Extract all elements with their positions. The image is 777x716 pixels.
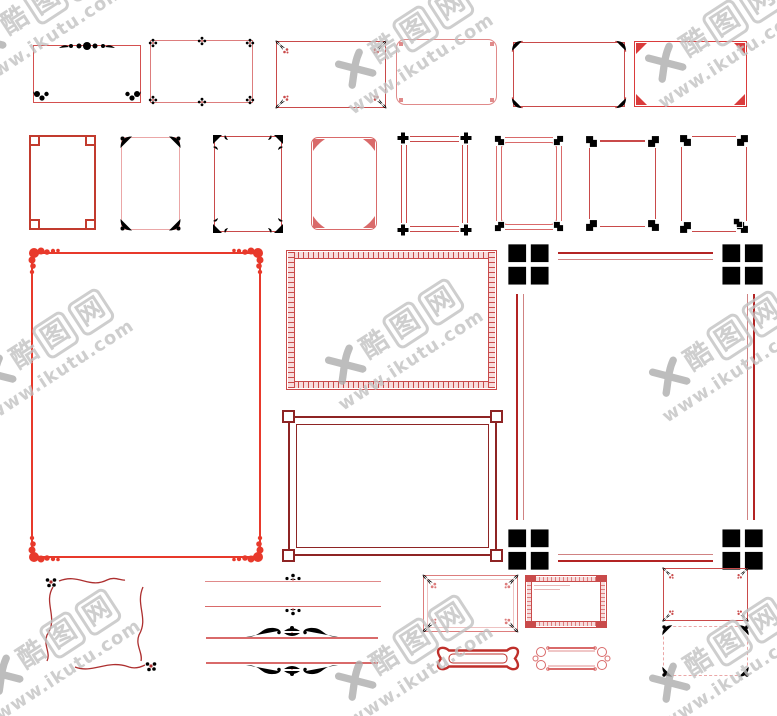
floral-spray-icon xyxy=(274,39,290,55)
lace-corner-icon xyxy=(119,135,134,150)
square-knot-icon xyxy=(585,135,598,148)
meander-band xyxy=(488,252,495,388)
square-knot-icon xyxy=(553,221,564,232)
frame-pink-dashed-small xyxy=(663,626,748,676)
frame-triangle-corner-rect xyxy=(634,41,747,107)
bottom-bar xyxy=(600,226,645,228)
floret-icon xyxy=(245,38,255,48)
frame-inset-bar-portrait xyxy=(589,137,656,230)
corner-square-icon xyxy=(490,42,494,46)
clipart-sheet: 酷 图 网 www.ikutu.com 酷 图 网 www.ikutu.com … xyxy=(0,0,777,716)
knot-square-icon xyxy=(29,219,40,230)
watermark-char: 网 xyxy=(425,0,477,32)
knot-square-icon xyxy=(282,549,295,562)
floral-spray-icon xyxy=(661,609,675,623)
divider-crown xyxy=(205,571,381,587)
top-bar xyxy=(600,140,645,142)
watermark-char: 图 xyxy=(20,0,72,27)
curl-corner-icon xyxy=(511,40,523,52)
floral-spray-icon xyxy=(736,566,750,580)
divider-swirl-up xyxy=(206,624,378,642)
watermark-char: 网 xyxy=(55,0,107,4)
square-knot-icon xyxy=(679,221,692,234)
floral-spray-icon xyxy=(736,609,750,623)
inner-border xyxy=(523,259,748,555)
angular-corner-icon xyxy=(212,134,228,150)
frame-fan-corner-portrait xyxy=(311,137,377,230)
knot-square-icon xyxy=(490,549,503,562)
frame-greek-key-border xyxy=(286,250,497,390)
cross-knot-icon xyxy=(396,223,410,237)
floral-spray-icon xyxy=(503,617,520,634)
divider-swirl-down xyxy=(206,656,378,676)
frame-curl-corner-rect xyxy=(513,42,625,107)
fan-corner-icon xyxy=(313,216,325,228)
knot-square-icon xyxy=(29,135,40,146)
meander-band xyxy=(288,252,295,388)
lace-corner-icon xyxy=(167,217,182,232)
frame-rounded-square-dots xyxy=(396,39,497,105)
curly-banner-icon xyxy=(428,643,528,674)
placeholder-line xyxy=(534,585,570,586)
floret-icon xyxy=(197,36,207,46)
cloud-corner-icon xyxy=(227,534,265,564)
cross-knot-icon xyxy=(396,131,410,145)
floret-icon xyxy=(148,95,158,105)
frame-ornate-corner-small xyxy=(663,568,748,621)
inner-border xyxy=(427,579,514,628)
scroll-band-icon xyxy=(57,41,117,51)
frame-floret-rect xyxy=(150,40,253,103)
square-knot-icon xyxy=(733,218,743,228)
triangle-corner-icon xyxy=(734,94,745,105)
frame-lace-portrait xyxy=(121,137,180,230)
scroll-banner-icon xyxy=(530,640,613,677)
pattern-band xyxy=(527,621,605,626)
floret-icon xyxy=(197,97,207,107)
cross-knot-icon xyxy=(459,223,473,237)
placeholder-line xyxy=(534,589,560,590)
floral-spray-icon xyxy=(503,573,520,590)
floral-spray-icon xyxy=(421,617,438,634)
ikutu-x-icon xyxy=(0,651,25,698)
pattern-band xyxy=(600,577,605,626)
knot-square-icon xyxy=(490,410,503,423)
ikutu-x-icon xyxy=(0,17,8,64)
frame-floral-corner-rect xyxy=(276,41,386,108)
fan-corner-icon xyxy=(363,139,375,151)
floral-spray-icon xyxy=(421,573,438,590)
lace-corner-icon xyxy=(119,217,134,232)
pattern-band xyxy=(527,577,605,582)
corner-square-icon xyxy=(490,98,494,102)
floral-spray-icon xyxy=(372,94,388,110)
floral-spray-icon xyxy=(661,566,675,580)
cloud-corner-icon xyxy=(227,246,265,276)
square-knot-icon xyxy=(679,134,692,147)
watermark-char: 酷 xyxy=(0,1,34,41)
corner-block-icon xyxy=(525,621,536,628)
meander-band xyxy=(288,381,495,388)
interlocked-knot-icon xyxy=(713,242,765,294)
corner-block-icon xyxy=(596,575,607,582)
square-knot-icon xyxy=(647,135,660,148)
frame-cloud-corner-large xyxy=(31,252,261,558)
square-knot-icon xyxy=(553,135,564,146)
meander-band xyxy=(288,252,495,259)
frame-knot-corner-portrait xyxy=(681,136,747,232)
angular-corner-icon xyxy=(268,134,284,150)
scroll-corner-icon xyxy=(31,89,51,105)
square-knot-icon xyxy=(736,134,749,147)
frame-angular-portrait xyxy=(214,136,282,232)
watermark-char: 网 xyxy=(735,0,777,26)
divider-line xyxy=(206,637,378,639)
divider-drop xyxy=(205,600,381,616)
interlocked-knot-icon xyxy=(713,520,765,572)
interlocked-knot-icon xyxy=(506,242,558,294)
swirl-ornament-icon xyxy=(244,624,340,638)
frame-certificate-small xyxy=(525,575,607,628)
ikutu-x-icon xyxy=(0,351,18,398)
curl-corner-icon xyxy=(615,97,627,109)
frame-dark-square-knot xyxy=(288,416,497,556)
knot-square-icon xyxy=(85,219,96,230)
banner-scroll-label xyxy=(530,640,613,677)
drop-ornament-icon xyxy=(280,607,306,617)
fan-corner-icon xyxy=(313,139,325,151)
corner-square-icon xyxy=(399,98,403,102)
frame-double-line-cross-portrait xyxy=(401,136,468,232)
fan-corner-icon xyxy=(363,216,375,228)
cloud-corner-icon xyxy=(27,246,65,276)
floral-spray-icon xyxy=(274,94,290,110)
angular-corner-icon xyxy=(268,218,284,234)
square-knot-icon xyxy=(494,221,505,232)
interlocked-knot-icon xyxy=(506,520,558,572)
corner-square-icon xyxy=(399,42,403,46)
corner-block-icon xyxy=(525,575,536,582)
triangle-corner-icon xyxy=(636,43,647,54)
angular-corner-icon xyxy=(212,218,228,234)
knot-square-icon xyxy=(85,135,96,146)
curl-corner-icon xyxy=(511,97,523,109)
curl-corner-icon xyxy=(615,40,627,52)
inner-border xyxy=(501,142,557,225)
knot-square-icon xyxy=(282,410,295,423)
wavy-flourish-icon xyxy=(31,573,168,676)
corner-block-icon xyxy=(596,621,607,628)
cross-knot-icon xyxy=(459,131,473,145)
frame-square-knot-portrait xyxy=(29,135,96,230)
frame-wavy-flourish xyxy=(31,573,168,676)
frame-ornate-small xyxy=(423,575,518,632)
lace-corner-icon xyxy=(661,665,674,678)
square-knot-icon xyxy=(647,219,660,232)
inner-border xyxy=(406,141,463,227)
floret-icon xyxy=(245,95,255,105)
lace-corner-icon xyxy=(737,624,750,637)
lace-corner-icon xyxy=(167,135,182,150)
square-knot-icon xyxy=(585,219,598,232)
floret-icon xyxy=(148,38,158,48)
swirl-ornament-icon xyxy=(244,664,340,678)
banner-curly-label xyxy=(428,643,528,674)
triangle-corner-icon xyxy=(636,94,647,105)
pattern-band xyxy=(527,577,532,626)
inner-border xyxy=(296,424,489,548)
frame-interlocked-knot-large xyxy=(516,252,755,562)
cloud-corner-icon xyxy=(27,534,65,564)
scroll-corner-icon xyxy=(123,89,143,105)
lace-corner-icon xyxy=(737,665,750,678)
frame-scroll-top-rect xyxy=(33,45,141,103)
lace-corner-icon xyxy=(661,624,674,637)
floral-spray-icon xyxy=(372,39,388,55)
triangle-corner-icon xyxy=(734,43,745,54)
frame-double-rounded-portrait xyxy=(496,137,562,230)
divider-line xyxy=(205,581,381,582)
square-knot-icon xyxy=(494,135,505,146)
